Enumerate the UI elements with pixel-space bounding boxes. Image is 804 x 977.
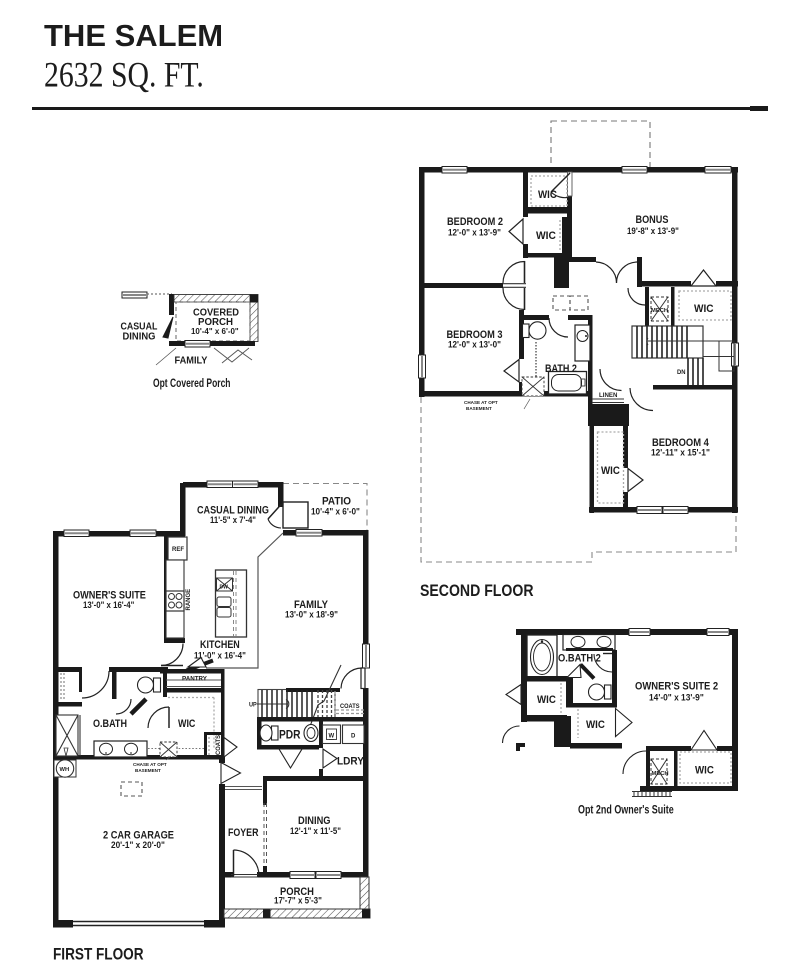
svg-text:12'-0" x 13'-9": 12'-0" x 13'-9" <box>448 227 501 238</box>
svg-text:O.BATH 2: O.BATH 2 <box>558 653 601 665</box>
svg-text:17'-7" x 5'-3": 17'-7" x 5'-3" <box>274 895 322 906</box>
svg-text:12'-1" x 11'-5": 12'-1" x 11'-5" <box>290 825 341 836</box>
svg-text:PANTRY: PANTRY <box>182 675 208 682</box>
svg-text:CHASE AT OPT: CHASE AT OPT <box>133 762 167 767</box>
svg-text:RANGE: RANGE <box>186 589 192 611</box>
svg-text:WIC: WIC <box>178 718 195 730</box>
svg-text:WIC: WIC <box>694 304 714 315</box>
svg-text:MECH: MECH <box>652 771 669 777</box>
svg-text:CHASE AT OPT: CHASE AT OPT <box>464 400 498 405</box>
svg-text:WIC: WIC <box>586 720 605 732</box>
svg-text:BASEMENT: BASEMENT <box>135 768 161 773</box>
svg-text:COATS: COATS <box>215 735 222 755</box>
svg-text:PDR: PDR <box>279 729 301 742</box>
svg-text:10'-4" x 6'-0": 10'-4" x 6'-0" <box>311 506 360 517</box>
svg-text:12'-11" x 15'-1": 12'-11" x 15'-1" <box>651 447 710 458</box>
svg-text:FIRST FLOOR: FIRST FLOOR <box>53 945 144 964</box>
svg-text:FOYER: FOYER <box>228 827 258 839</box>
svg-text:D: D <box>351 734 356 740</box>
svg-text:Opt 2nd Owner's Suite: Opt 2nd Owner's Suite <box>578 805 674 817</box>
svg-text:WIC: WIC <box>537 695 556 707</box>
svg-text:WH: WH <box>60 767 70 773</box>
svg-text:10'-4" x 6'-0": 10'-4" x 6'-0" <box>191 327 239 336</box>
svg-text:13'-0" x 16'-4": 13'-0" x 16'-4" <box>83 599 134 610</box>
svg-text:11'-0" x 16'-4": 11'-0" x 16'-4" <box>194 650 246 661</box>
svg-text:BASEMENT: BASEMENT <box>466 406 492 411</box>
svg-text:13'-0" x 18'-9": 13'-0" x 18'-9" <box>285 609 338 620</box>
svg-text:THE SALEM: THE SALEM <box>44 18 223 53</box>
svg-text:WIC: WIC <box>538 190 557 202</box>
svg-text:WIC: WIC <box>601 466 620 478</box>
svg-text:20'-1" x 20'-0": 20'-1" x 20'-0" <box>111 839 165 850</box>
svg-text:W: W <box>329 734 335 740</box>
svg-text:O.BATH: O.BATH <box>93 718 127 730</box>
svg-text:OWNER'S SUITE 2: OWNER'S SUITE 2 <box>635 681 718 693</box>
svg-text:UP: UP <box>249 702 257 708</box>
svg-text:SECOND FLOOR: SECOND FLOOR <box>420 582 534 600</box>
svg-text:REF: REF <box>172 547 184 553</box>
svg-text:MECH: MECH <box>651 308 668 314</box>
svg-text:LDRY: LDRY <box>337 755 364 768</box>
svg-text:12'-0" x 13'-0": 12'-0" x 13'-0" <box>448 339 501 350</box>
svg-text:FAMILY: FAMILY <box>175 355 208 367</box>
svg-text:19'-8" x 13'-9": 19'-8" x 13'-9" <box>627 225 679 236</box>
svg-text:LINEN: LINEN <box>599 392 618 399</box>
svg-text:DN: DN <box>677 370 685 376</box>
svg-text:BATH 2: BATH 2 <box>545 363 577 375</box>
svg-text:14'-0" x 13'-9": 14'-0" x 13'-9" <box>649 692 704 703</box>
svg-text:WIC: WIC <box>536 230 556 242</box>
svg-text:2632 SQ. FT.: 2632 SQ. FT. <box>44 56 204 95</box>
svg-text:Opt Covered Porch: Opt Covered Porch <box>153 378 230 391</box>
svg-text:COATS: COATS <box>340 703 359 710</box>
svg-text:WIC: WIC <box>695 765 714 777</box>
svg-text:11'-5" x 7'-4": 11'-5" x 7'-4" <box>210 514 256 525</box>
svg-text:DINING: DINING <box>123 331 156 342</box>
svg-text:DW: DW <box>220 585 229 591</box>
